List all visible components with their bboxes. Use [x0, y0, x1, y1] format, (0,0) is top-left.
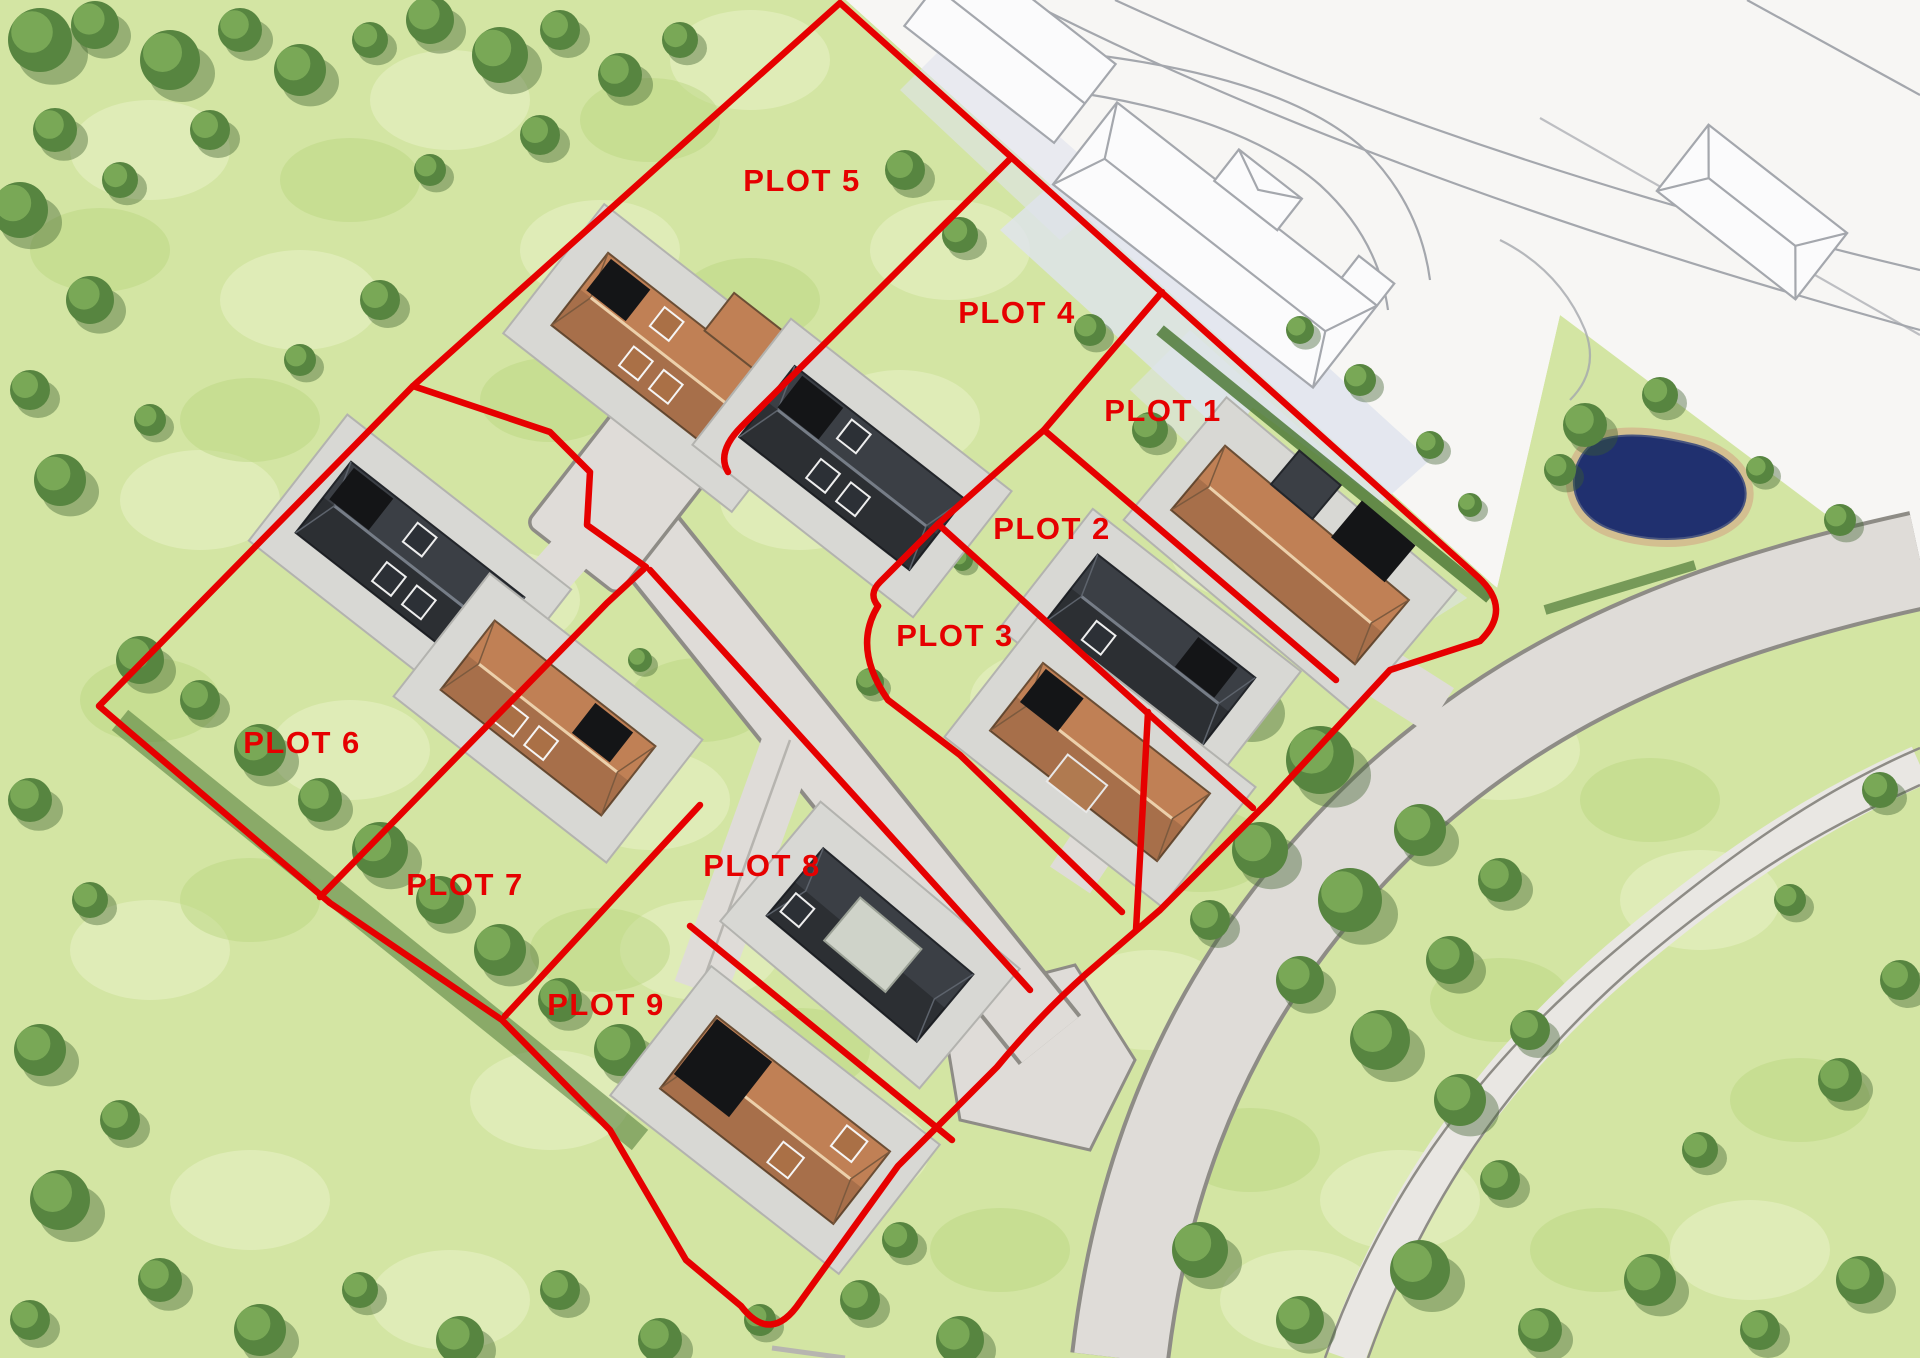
site-plan-canvas: PLOT 1 PLOT 2 PLOT 3 PLOT 4 PLOT 5 PLOT …	[0, 0, 1920, 1358]
site-plan: PLOT 1 PLOT 2 PLOT 3 PLOT 4 PLOT 5 PLOT …	[0, 0, 1920, 1358]
plot-6-label: PLOT 6	[243, 725, 361, 760]
plot-9-label: PLOT 9	[547, 987, 665, 1022]
plot-5-label: PLOT 5	[743, 163, 861, 198]
plot-7-label: PLOT 7	[406, 867, 524, 902]
plot-3-label: PLOT 3	[896, 618, 1014, 653]
plot-8-label: PLOT 8	[703, 848, 821, 883]
plot-2-label: PLOT 2	[993, 511, 1111, 546]
plot-4-label: PLOT 4	[958, 295, 1076, 330]
plot-1-label: PLOT 1	[1104, 393, 1222, 428]
